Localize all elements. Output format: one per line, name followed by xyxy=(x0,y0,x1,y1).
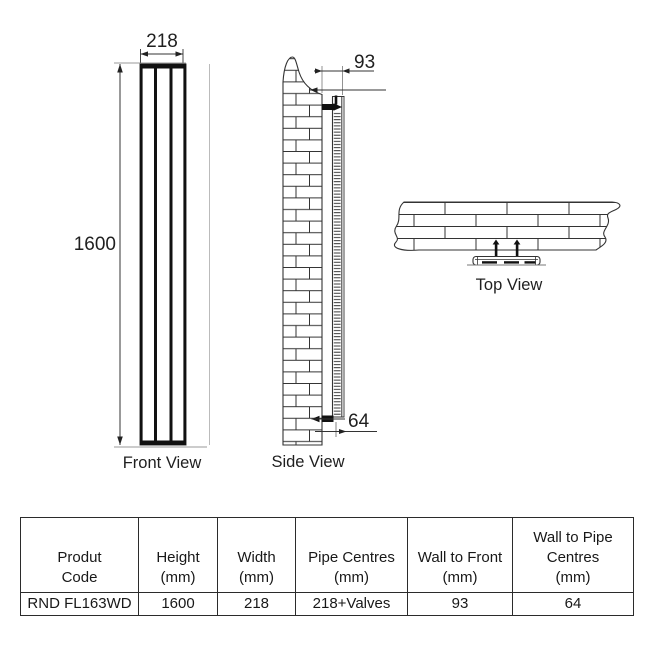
side-wall xyxy=(283,57,322,445)
front-width-dimension-value: 218 xyxy=(146,31,178,52)
spec-table: Produt Code Height (mm) Width (mm) Pipe … xyxy=(20,517,634,616)
front-view-label: Front View xyxy=(123,454,202,472)
side-radiator-profile xyxy=(332,97,345,418)
col-header-pipe-centres: Pipe Centres (mm) xyxy=(296,518,408,593)
front-width-arrow-right xyxy=(176,51,184,56)
side-93-arrow-left xyxy=(315,68,322,73)
front-width-arrow-left xyxy=(141,51,149,56)
spec-table-header-row: Produt Code Height (mm) Width (mm) Pipe … xyxy=(21,518,634,593)
cell-width: 218 xyxy=(218,593,296,616)
front-radiator-body xyxy=(140,64,186,445)
front-panel-edge-right xyxy=(183,64,186,445)
front-height-arrow-bottom xyxy=(117,437,123,446)
col-header-product-code: Produt Code xyxy=(21,518,139,593)
col-header-width: Width (mm) xyxy=(218,518,296,593)
cell-pipe-centres: 218+Valves xyxy=(296,593,408,616)
top-radiator-body xyxy=(467,257,546,266)
col-header-height: Height (mm) xyxy=(139,518,218,593)
side-wall-to-front-value: 93 xyxy=(354,52,375,73)
front-height-arrow-top xyxy=(117,64,123,73)
cell-height: 1600 xyxy=(139,593,218,616)
cell-product-code: RND FL163WD xyxy=(21,593,139,616)
cell-wall-to-front: 93 xyxy=(408,593,513,616)
front-height-dimension-line xyxy=(117,64,123,445)
top-view-label: Top View xyxy=(476,276,543,294)
front-panel-divider-2 xyxy=(170,64,173,445)
col-header-wall-to-pipe-centres: Wall to Pipe Centres (mm) xyxy=(513,518,634,593)
side-view-label: Side View xyxy=(271,453,344,471)
front-panel-divider-1 xyxy=(154,64,157,445)
col-header-wall-to-front: Wall to Front (mm) xyxy=(408,518,513,593)
side-93-arrow-right xyxy=(343,68,350,73)
radiator-spec-sheet: 218 xyxy=(0,0,650,650)
side-64-arrow xyxy=(339,429,347,434)
front-radiator-top-cap xyxy=(140,64,186,69)
front-radiator-bottom-cap xyxy=(140,441,186,446)
side-wall-to-pipe-value: 64 xyxy=(348,411,370,432)
side-view: 93 64 Side View xyxy=(271,52,386,471)
front-panel-edge-left xyxy=(140,64,143,445)
cell-wall-to-pipe-centres: 64 xyxy=(513,593,634,616)
front-view: 218 xyxy=(74,31,210,472)
spec-table-data-row: RND FL163WD 1600 218 218+Valves 93 64 xyxy=(21,593,634,616)
front-height-dimension-value: 1600 xyxy=(74,234,116,255)
technical-drawing: 218 xyxy=(0,0,650,505)
top-view: Top View xyxy=(394,202,619,294)
side-radiator-fins xyxy=(333,112,341,415)
top-wall xyxy=(394,202,619,250)
